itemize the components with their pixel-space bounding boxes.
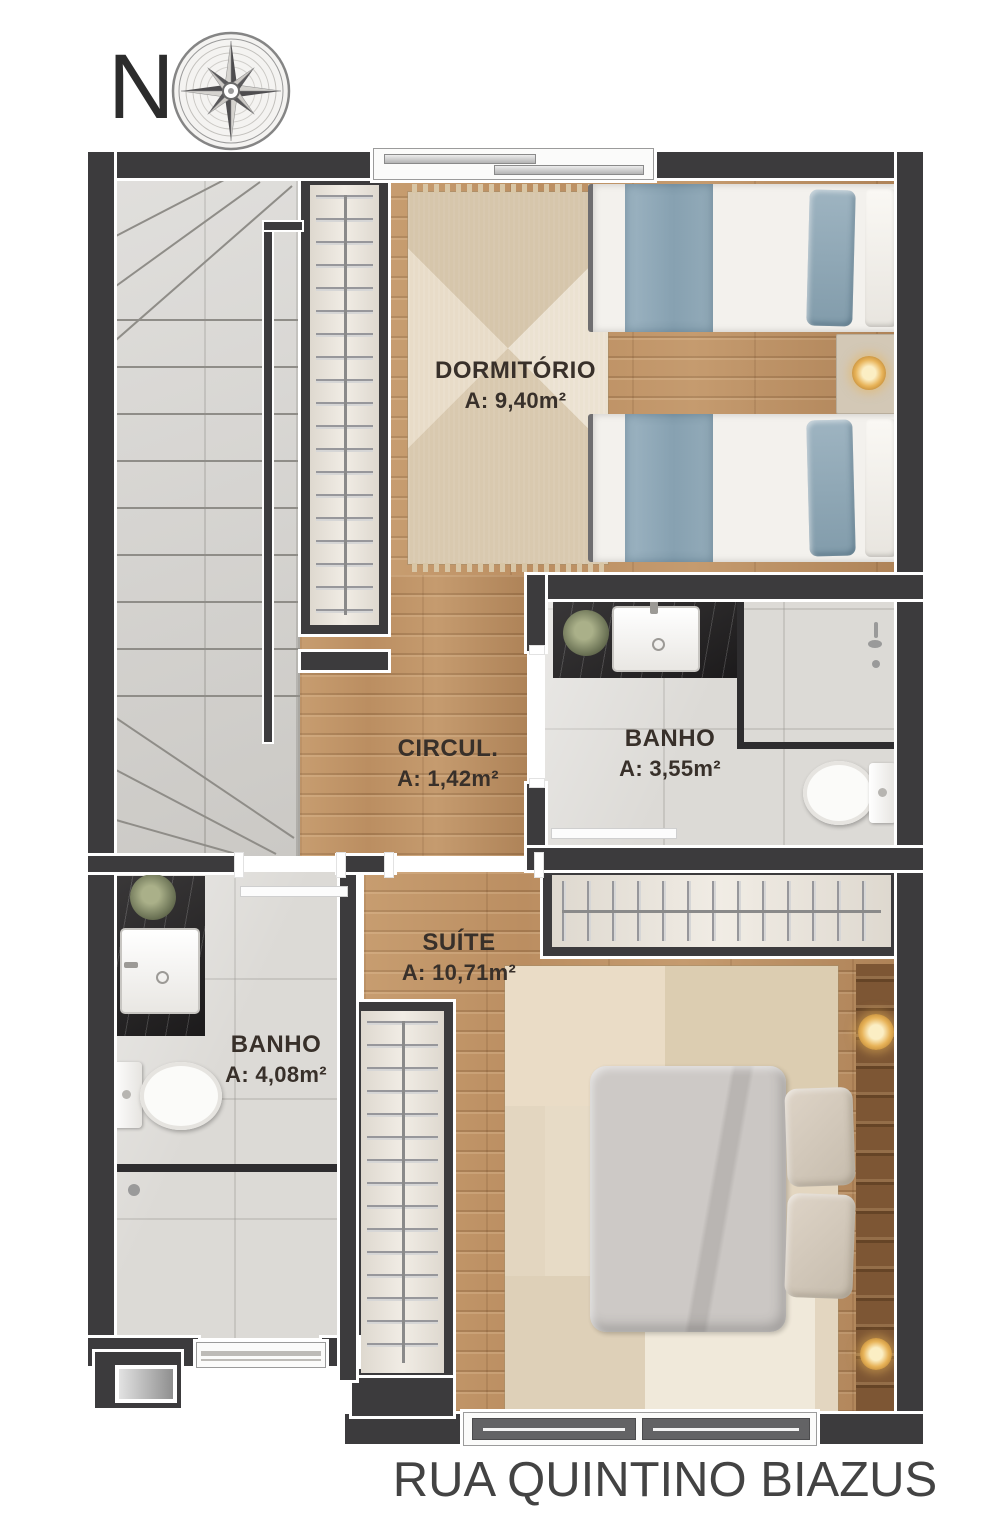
toilet-tank-upper — [869, 763, 896, 823]
bed1-pillow-blue — [806, 189, 856, 326]
lamp-icon-dormitorio — [852, 356, 886, 390]
suite-pillow-2 — [784, 1193, 856, 1299]
room-label-banho-superior: BANHO A: 3,55m² — [585, 724, 755, 784]
window-sill — [201, 1351, 321, 1356]
rug-tassels-bottom — [412, 563, 604, 572]
hanger-rod — [562, 910, 881, 913]
bed1-pillow-white — [865, 189, 897, 327]
room-label-banho-suite: BANHO A: 4,08m² — [192, 1030, 360, 1090]
room-area: A: 3,55m² — [585, 754, 755, 784]
flush-button — [122, 1090, 131, 1099]
window-dormitorio — [373, 148, 654, 180]
double-bed-duvet — [590, 1066, 786, 1332]
window-pane — [494, 165, 644, 175]
interior-wall-dorm-bath — [527, 575, 923, 599]
window-pane — [472, 1418, 636, 1440]
rug-tassels-top — [412, 184, 604, 193]
stair-handrail-wall — [264, 222, 272, 742]
room-name: DORMITÓRIO — [398, 356, 633, 386]
bed2-blanket — [625, 414, 713, 562]
room-area: A: 9,40m² — [398, 386, 633, 416]
suite-closet-interior — [552, 875, 891, 947]
sink-upper-bathroom — [612, 606, 700, 672]
door-jamb — [336, 852, 346, 878]
plant-icon-upper — [563, 610, 609, 656]
stairs-steps — [114, 178, 300, 856]
exterior-wall-top-left — [88, 152, 375, 178]
shower-divider-horizontal — [737, 742, 898, 749]
window-small-bottom-left — [118, 1368, 174, 1400]
room-area: A: 4,08m² — [192, 1060, 360, 1090]
faucet-suite-bathroom — [124, 962, 138, 968]
window-pane — [642, 1418, 810, 1440]
exterior-wall-top-right — [650, 152, 923, 178]
window-suite — [463, 1412, 817, 1446]
room-area: A: 1,42m² — [364, 764, 532, 794]
room-label-dormitorio: DORMITÓRIO A: 9,40m² — [398, 356, 633, 416]
sink-suite-bathroom — [120, 928, 200, 1014]
lamp-icon-suite-top — [858, 1014, 894, 1050]
toilet-tank-suite — [112, 1062, 142, 1128]
suite-closet — [543, 866, 900, 956]
lamp-icon-suite-bottom — [860, 1338, 892, 1370]
suite-wardrobe — [352, 1002, 453, 1382]
plant-icon-suite — [130, 874, 176, 920]
door-jamb — [234, 852, 244, 878]
door-jamb — [384, 852, 394, 878]
door-jamb — [529, 645, 545, 655]
window-suite-bathroom — [196, 1342, 326, 1368]
closet-interior — [310, 185, 379, 625]
interior-wall-bath-upper-left-a — [527, 575, 545, 651]
flush-button — [878, 788, 887, 797]
window-sill — [201, 1359, 321, 1361]
shower-head-icon — [874, 622, 878, 638]
hanger-rod — [402, 1021, 405, 1363]
room-name: BANHO — [192, 1030, 360, 1060]
compass-rose-icon — [168, 28, 294, 154]
interior-wall-bath-upper-left-b — [527, 784, 545, 856]
interior-wall-bath-suite-divider — [340, 856, 356, 1380]
shower-knob-icon — [872, 660, 880, 668]
window-pane — [384, 154, 536, 164]
closet-dormitorio — [301, 176, 388, 634]
floor-plan-canvas: N — [0, 0, 1008, 1517]
door-leaf-suite-bathroom — [240, 886, 348, 897]
bed2-pillow-blue — [806, 419, 856, 556]
shower-head-icon — [868, 640, 882, 648]
suite-pillow-1 — [784, 1087, 855, 1187]
street-name: RUA QUINTINO BIAZUS — [390, 1452, 940, 1508]
room-area: A: 10,71m² — [375, 958, 543, 988]
exterior-wall-right — [897, 152, 923, 1444]
faucet-upper-bathroom — [650, 600, 658, 614]
room-label-suite: SUÍTE A: 10,71m² — [375, 928, 543, 988]
toilet-bowl-upper — [803, 761, 875, 825]
closet-stub-wall — [301, 652, 388, 670]
exterior-wall-bottom-suite-left — [345, 1414, 467, 1444]
interior-wall-stairs-bath — [88, 856, 240, 872]
room-name: SUÍTE — [375, 928, 543, 958]
door-jamb — [534, 852, 544, 878]
exterior-wall-left — [88, 152, 114, 1366]
room-name: BANHO — [585, 724, 755, 754]
exterior-wall-bottom-suite-right — [813, 1414, 923, 1444]
bed2-pillow-white — [865, 419, 897, 557]
twin-bed-1 — [588, 184, 903, 332]
hanger-rod — [344, 195, 347, 615]
shower-drain-icon — [128, 1184, 140, 1196]
compass-north-letter: N — [108, 40, 174, 134]
door-leaf-upper-bathroom — [551, 828, 677, 839]
bed1-blanket — [625, 184, 713, 332]
shower-divider-suite — [116, 1164, 340, 1172]
room-name: CIRCUL. — [364, 734, 532, 764]
twin-bed-2 — [588, 414, 903, 562]
wardrobe-bottom-wall — [352, 1378, 453, 1416]
room-label-circulacao: CIRCUL. A: 1,42m² — [364, 734, 532, 794]
stair-handrail-wall-top — [264, 222, 302, 230]
interior-wall-bath-closet — [527, 848, 923, 870]
suite-wardrobe-interior — [361, 1011, 444, 1373]
